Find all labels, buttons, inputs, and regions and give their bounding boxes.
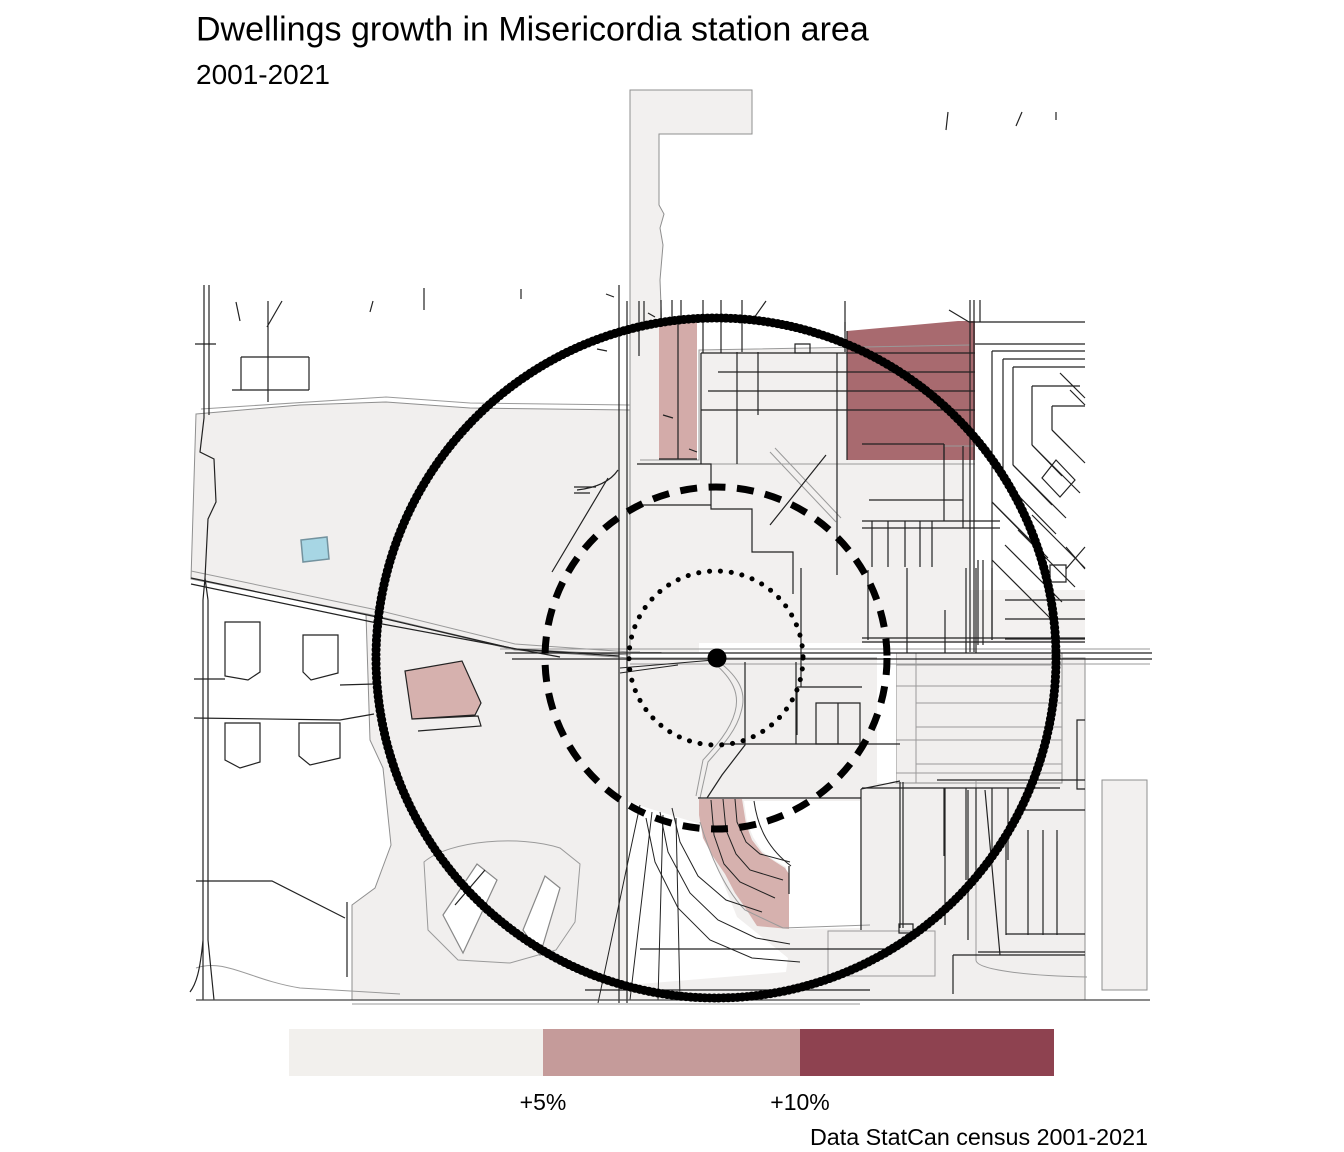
svg-text:2001-2021: 2001-2021 (196, 59, 330, 90)
svg-text:+10%: +10% (770, 1089, 829, 1115)
svg-text:Dwellings growth in Misericord: Dwellings growth in Misericordia station… (196, 11, 869, 49)
svg-text:+5%: +5% (520, 1089, 567, 1115)
svg-text:Data StatCan census 2001-2021: Data StatCan census 2001-2021 (810, 1124, 1148, 1150)
